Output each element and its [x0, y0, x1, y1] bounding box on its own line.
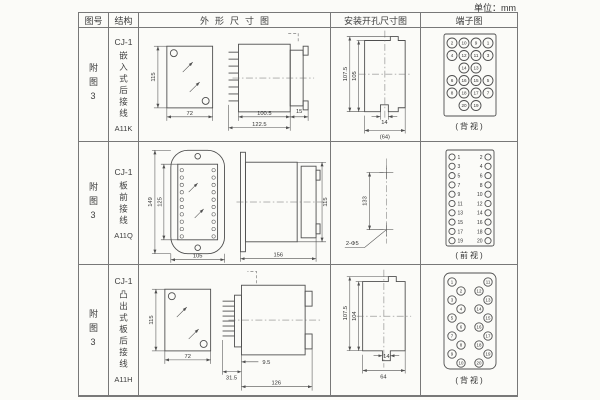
svg-text:17: 17 [473, 90, 479, 95]
svg-text:17: 17 [486, 333, 491, 338]
terminal-dots [180, 168, 215, 238]
fig-label: 附图3 [87, 309, 100, 352]
model-label: CJ-1 [115, 276, 133, 286]
svg-text:7: 7 [451, 333, 454, 338]
dim-total-length: 156 [273, 252, 283, 258]
svg-text:16: 16 [477, 324, 482, 329]
hook-mark [247, 271, 256, 283]
svg-text:11: 11 [474, 53, 479, 58]
dim-slot-width: 14 [381, 120, 388, 126]
dim-body-length: 100.5 [257, 110, 271, 116]
mounting-screw-icon [170, 49, 177, 56]
svg-text:13: 13 [473, 65, 479, 70]
row3-outline-cell: 115 72 [139, 265, 331, 396]
model-label: CJ-1 [115, 37, 133, 47]
svg-text:4: 4 [451, 53, 454, 58]
dim-side-height: 115 [323, 197, 329, 206]
fig-label: 附图3 [87, 63, 100, 106]
dim-front-width: 72 [187, 110, 193, 116]
svg-text:8: 8 [451, 90, 454, 95]
svg-text:16: 16 [461, 78, 467, 83]
mounting-screw-icon [202, 97, 209, 104]
svg-text:20: 20 [477, 238, 483, 244]
svg-text:6: 6 [460, 324, 463, 329]
type-code: A11K [115, 124, 133, 133]
svg-text:20: 20 [461, 103, 467, 108]
svg-text:3: 3 [458, 164, 461, 170]
model-label: CJ-1 [115, 167, 133, 177]
svg-text:16: 16 [477, 220, 483, 226]
svg-text:11: 11 [486, 279, 491, 284]
svg-text:9: 9 [451, 351, 454, 356]
svg-text:6: 6 [480, 173, 483, 179]
svg-text:8: 8 [480, 182, 483, 188]
svg-text:1: 1 [451, 279, 454, 284]
spec-table: 图号 结构 外形尺寸图 安装开孔尺寸图 端子图 附图3 CJ-1 嵌入式后接线 … [78, 12, 518, 397]
svg-text:13: 13 [486, 297, 491, 302]
svg-text:12: 12 [477, 201, 483, 207]
svg-text:3: 3 [451, 297, 454, 302]
terminal-pins [223, 301, 235, 336]
terminal-circles: 2109141211314136161558181772019 [447, 38, 493, 111]
type-code: A11H [114, 375, 132, 384]
view-label: (背视) [455, 121, 484, 131]
svg-text:12: 12 [461, 53, 467, 58]
header-structure: 结构 [109, 13, 139, 28]
dim-front-width: 105 [193, 253, 203, 259]
svg-text:2: 2 [480, 154, 483, 160]
svg-text:15: 15 [458, 220, 464, 226]
arrow-mark-icon [177, 307, 187, 317]
svg-text:4: 4 [480, 164, 483, 170]
dim-cutout-inner-h: 105 [352, 71, 358, 81]
dim-front-height: 115 [151, 72, 157, 81]
mounting-hole-icon [195, 244, 201, 250]
fig-label: 附图3 [87, 182, 100, 225]
svg-text:9: 9 [475, 40, 478, 45]
dim-flange-height: 149 [148, 197, 154, 207]
svg-text:10: 10 [461, 40, 467, 45]
svg-text:18: 18 [477, 229, 483, 235]
svg-text:9: 9 [458, 192, 461, 198]
svg-text:6: 6 [451, 78, 454, 83]
dim-rear-depth: 15 [296, 108, 302, 114]
svg-text:5: 5 [451, 315, 454, 320]
view-label: (背视) [455, 375, 484, 385]
dim-cutout-outer-h: 107.5 [343, 306, 349, 320]
svg-text:19: 19 [473, 103, 479, 108]
terminal-pins [229, 52, 239, 101]
svg-text:14: 14 [477, 210, 483, 216]
mounting-screw-icon [168, 292, 175, 299]
hook-mark [288, 33, 298, 42]
dim-cutout-width: (64) [380, 134, 390, 140]
svg-text:4: 4 [460, 306, 463, 311]
svg-text:2: 2 [460, 288, 463, 293]
svg-text:1: 1 [487, 40, 490, 45]
svg-text:10: 10 [459, 360, 464, 365]
svg-text:7: 7 [458, 182, 461, 188]
dim-total-length: 122.5 [252, 121, 266, 127]
svg-text:11: 11 [458, 201, 463, 207]
terminal-diagram-front-board: 1234567891011121314151617181920 (前视) [421, 142, 517, 265]
outline-drawing-embedded: 115 72 [139, 28, 330, 142]
svg-text:15: 15 [473, 78, 479, 83]
arrow-mark-icon [195, 208, 204, 217]
svg-text:17: 17 [458, 229, 464, 235]
row3-terminal-cell: 1212113414135616157818179102019 (背视) [421, 265, 517, 396]
header-fig-no: 图号 [79, 13, 109, 28]
row2-fig-no: 附图3 [79, 142, 109, 265]
svg-text:2: 2 [451, 40, 454, 45]
header-install-dims: 安装开孔尺寸图 [331, 13, 421, 28]
svg-text:8: 8 [460, 342, 463, 347]
svg-text:19: 19 [486, 351, 491, 356]
row2-install-cell: 133 2-Φ5 [331, 142, 421, 265]
svg-text:5: 5 [487, 78, 490, 83]
svg-text:19: 19 [458, 238, 464, 244]
mounting-screw-icon [200, 340, 207, 347]
row3-structure: CJ-1 凸出式板后接线 A11H [109, 265, 139, 396]
svg-text:5: 5 [458, 173, 461, 179]
install-holes-board-front: 133 2-Φ5 [331, 142, 420, 265]
row1-outline-cell: 115 72 [139, 28, 331, 142]
dim-slot-width: 14 [383, 354, 390, 360]
outline-drawing-convex: 115 72 [139, 265, 330, 396]
terminal-circles: 1212113414135616157818179102019 [448, 277, 492, 366]
arrow-mark-icon [183, 62, 193, 72]
dim-cutout-outer-h: 107.5 [343, 66, 349, 80]
dim-cutout-inner-h: 104 [352, 310, 358, 320]
row2-terminal-cell: 1234567891011121314151617181920 (前视) [421, 142, 517, 265]
arrow-mark-icon [190, 82, 200, 92]
terminal-diagram-back-convex: 1212113414135616157818179102019 (背视) [421, 265, 517, 396]
row2-structure: CJ-1 板前接线 A11Q [109, 142, 139, 265]
svg-text:18: 18 [477, 342, 482, 347]
terminal-diagram-back-embedded: 2109141211314136161558181772019 (背视) [421, 28, 517, 142]
svg-text:18: 18 [461, 90, 467, 95]
svg-text:12: 12 [477, 288, 482, 293]
svg-text:20: 20 [477, 360, 482, 365]
svg-text:10: 10 [477, 192, 483, 198]
row2-outline-cell: 149 125 105 156 [139, 142, 331, 265]
terminal-circles: 1234567891011121314151617181920 [449, 153, 491, 244]
install-cutout-embedded: 107.5 105 14 (64) [331, 28, 420, 142]
header-terminal-diagram: 端子图 [421, 13, 517, 28]
row1-fig-no: 附图3 [79, 28, 109, 142]
dim-hole-spacing: 133 [363, 196, 369, 206]
dim-body-height: 125 [157, 197, 163, 207]
row3-fig-no: 附图3 [79, 265, 109, 396]
view-label: (前视) [455, 250, 484, 260]
svg-text:7: 7 [487, 90, 490, 95]
outline-drawing-board-front: 149 125 105 156 [139, 142, 330, 265]
row1-terminal-cell: 2109141211314136161558181772019 (背视) [421, 28, 517, 142]
dim-cutout-width: 64 [380, 374, 387, 380]
svg-text:14: 14 [461, 65, 467, 70]
type-code: A11Q [114, 231, 133, 240]
row1-structure: CJ-1 嵌入式后接线 A11K [109, 28, 139, 142]
dim-front-height: 115 [149, 315, 155, 324]
dim-pin-depth: 31.5 [226, 375, 237, 381]
install-cutout-convex: 107.5 104 14 64 [331, 265, 420, 396]
row3-install-cell: 107.5 104 14 64 [331, 265, 421, 396]
dim-front-width: 72 [185, 353, 191, 359]
document-page: 单位：mm 图号 结构 外形尺寸图 安装开孔尺寸图 端子图 附图3 CJ-1 嵌… [0, 0, 600, 400]
svg-text:15: 15 [486, 315, 491, 320]
svg-text:3: 3 [487, 53, 490, 58]
dim-total-length: 126 [271, 380, 281, 386]
mounting-hole-icon [195, 153, 201, 159]
svg-text:1: 1 [458, 154, 461, 160]
structure-desc: 凸出式板后接线 [118, 290, 130, 371]
row1-install-cell: 107.5 105 14 (64) [331, 28, 421, 142]
arrow-mark-icon [189, 329, 199, 339]
svg-text:13: 13 [458, 210, 464, 216]
dim-offset: 9.5 [262, 359, 270, 365]
svg-text:14: 14 [477, 306, 482, 311]
hole-spec-label: 2-Φ5 [346, 241, 359, 247]
header-outline-dims: 外形尺寸图 [139, 13, 331, 28]
structure-desc: 板前接线 [118, 181, 130, 227]
structure-desc: 嵌入式后接线 [118, 51, 130, 120]
arrow-mark-icon [189, 183, 198, 192]
